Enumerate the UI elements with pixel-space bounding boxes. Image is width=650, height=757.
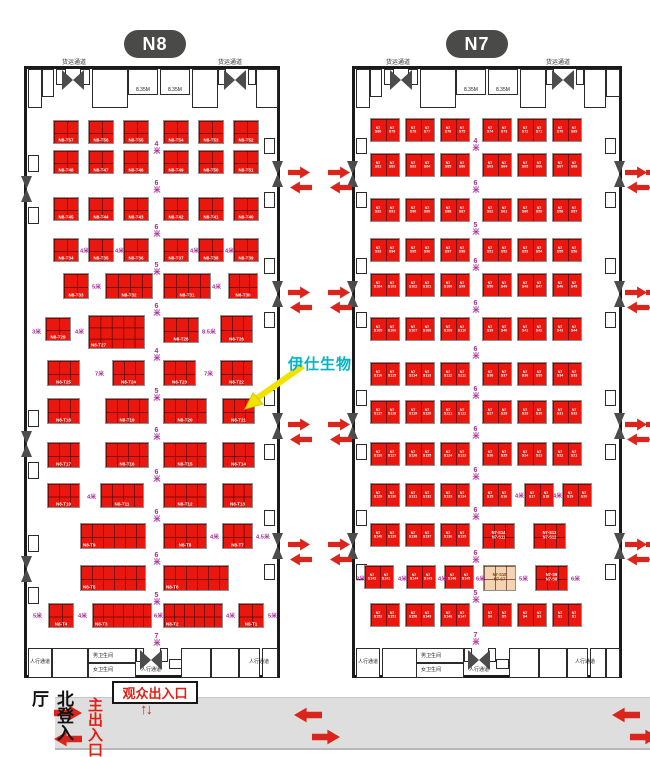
service-room [356,69,370,108]
up-down-arrows-icon: ↑↓ [140,701,151,718]
service-room [576,69,584,85]
booth-N8-T27[interactable]: N8-T27 [88,315,145,349]
service-room [264,258,275,274]
booth-N8-T46[interactable]: N8-T46 [123,150,149,174]
booth-N8-T47[interactable]: N8-T47 [88,150,114,174]
direction-arrow-icon [625,166,647,179]
booth-N8-T32[interactable]: N8-T32 [105,273,153,299]
tiny-label: 男卫生间 [421,652,441,659]
booth-N7-S105[interactable]: N7S105N7S106 [370,317,400,341]
booth-N7-S22[interactable]: N7S22N7S21 [552,442,582,466]
booth-N7-S27[interactable]: N7S27N7S28 [482,400,512,424]
service-room [605,564,616,580]
service-room [28,462,39,479]
booth-N7-S15[interactable]: N7S15N7S16 [482,483,512,507]
booth-N7-S124[interactable]: N7S124N7S123 [440,442,470,466]
booth-N7-S10[interactable]: N7-S10N7-S7 [483,565,516,591]
booth-N8-T3[interactable]: N8-T3 [92,603,152,628]
booth-N7-S138[interactable]: N7S138N7S137 [405,523,435,547]
direction-arrow-icon [627,553,649,566]
booth-N7-S58[interactable]: N7S58N7S57 [552,198,582,222]
booth-N8-T11[interactable]: N8-T11 [100,483,144,508]
aisle-dimension-label: 6米 [571,575,580,583]
direction-arrow-icon [625,418,647,431]
aisle-dimension-label: 6米 [470,180,480,192]
booth-N7-S83[interactable]: N7S83N7S84 [405,153,435,177]
service-room [192,69,218,108]
booth-N7-S39[interactable]: N7S39N7S40 [482,317,512,341]
booth-N8-T24[interactable]: N8-T24 [112,360,145,386]
direction-arrow-icon [330,433,352,446]
booth-N7-S102[interactable]: N7S102N7S101 [405,273,435,297]
booth-N8-T39[interactable]: N8-T39 [233,238,259,262]
aisle-dimension-label: 4米 [553,492,562,500]
service-room [605,510,616,526]
booth-N7-S34[interactable]: N7S34N7S33 [552,362,582,386]
service-room [584,69,606,108]
booth-N8-T53[interactable]: N8-T53 [198,120,224,144]
aisle-dimension-label: 4米 [151,348,161,360]
booth-N7-S100[interactable]: N7S100N7S99 [440,273,470,297]
aisle-dimension-label: 4米 [212,283,221,291]
booth-N8-T21[interactable]: N8-T21 [222,398,255,424]
aisle-dimension-label: 5米 [151,388,161,400]
aisle-dimension-label: 7米 [470,632,480,644]
visitor-entrance-label: 观众出入口 [112,681,198,704]
booth-N8-T9[interactable]: N8-T9 [80,523,146,549]
booth-N8-T56[interactable]: N8-T56 [88,120,114,144]
north-hall-label: 北登入厅 [26,690,76,757]
booth-N7-S116[interactable]: N7S116N7S115 [370,362,400,386]
aisle-dimension-label: 6米 [470,467,480,479]
booth-N7-S78[interactable]: N7S78N7S77 [405,118,435,142]
tiny-label: 8.35M [496,87,510,93]
booth-N7-S60[interactable]: N7S60N7S59 [517,198,547,222]
tiny-label: 人行通道 [575,658,595,665]
service-room [356,510,367,526]
booth-N7-S72[interactable]: N7S72N7S71 [517,118,547,142]
booth-N7-S19[interactable]: N7S19N7S20 [562,483,592,507]
exhibitor-annotation: 伊仕生物 [288,353,352,374]
booth-N7-S119[interactable]: N7S119N7S120 [405,400,435,424]
booth-N8-T51[interactable]: N8-T51 [233,150,259,174]
direction-arrow-icon [288,418,310,431]
service-room [264,510,275,526]
service-room [605,138,616,154]
aisle-dimension-label: 8.5米 [202,328,216,336]
aisle-dimension-label: 6米 [470,346,480,358]
direction-arrow-icon [627,433,649,446]
booth-N7-S148[interactable]: N7S148N7S147 [440,603,470,627]
booth-N8-T18[interactable]: N8-T18 [47,398,80,424]
booth-N8-T29[interactable]: N8-T29 [45,317,71,341]
booth-N7-S62[interactable]: N7S62N7S61 [482,198,512,222]
booth-N7-S53[interactable]: N7S53N7S54 [517,238,547,262]
booth-N8-T45[interactable]: N8-T45 [53,197,79,221]
aisle-dimension-label: 6米 [476,575,485,583]
booth-N7-S114[interactable]: N7S114N7S113 [405,362,435,386]
aisle-dimension-label: 4米 [75,328,84,336]
aisle-dimension-label: 6米 [470,550,480,562]
booth-N7-S76[interactable]: N7S76N7S75 [440,118,470,142]
service-room [52,648,88,678]
aisle-dimension-label: 5米 [151,592,161,604]
direction-arrow-icon [330,553,352,566]
service-room [264,390,275,406]
aisle-dimension-label: 4米 [438,575,447,583]
tiny-label: 人行通道 [30,658,50,665]
direction-arrow-icon [625,538,647,551]
booth-N8-T28[interactable]: N8-T28 [163,317,199,343]
aisle-dimension-label: 4米 [226,612,235,620]
booth-N7-S36[interactable]: N7S36N7S35 [517,362,547,386]
booth-N8-T8[interactable]: N8-T8 [163,523,207,549]
service-room [28,155,39,172]
aisle-dimension-label: 4米 [87,493,96,501]
aisle-dimension-label: 4米 [515,492,524,500]
booth-N8-T4[interactable]: N8-T4 [48,603,74,628]
booth-N8-T1[interactable]: N8-T1 [238,603,264,628]
booth-N8-T52[interactable]: N8-T52 [233,120,259,144]
tiny-label: 8.35M [136,87,150,93]
aisle-dimension-label: 5米 [151,262,161,274]
booth-N8-T13[interactable]: N8-T13 [222,483,253,508]
booth-N8-T16[interactable]: N8-T16 [105,442,149,468]
service-room [28,587,39,604]
direction-arrow-icon [646,538,650,551]
booth-N7-S38[interactable]: N7S38N7S37 [482,362,512,386]
booth-N7-S55[interactable]: N7S55N7S56 [552,238,582,262]
booth-N7-S140[interactable]: N7S140N7S139 [370,523,400,547]
aisle-dimension-label: 6米 [470,258,480,270]
service-room [28,535,39,552]
booth-N8-T54[interactable]: N8-T54 [163,120,189,144]
service-room [382,648,418,678]
direction-arrow-icon [328,538,350,551]
direction-arrow-icon [328,418,350,431]
aisle-dimension-label: 4米 [398,575,407,583]
booth-N7-S117[interactable]: N7S117N7S118 [370,400,400,424]
booth-N7-S128[interactable]: N7S128N7S127 [370,442,400,466]
tiny-label: 人行通道 [249,658,269,665]
direction-arrow-icon [290,553,312,566]
aisle-dimension-label: 3米 [356,575,365,583]
booth-N8-T50[interactable]: N8-T50 [198,150,224,174]
direction-arrow-icon [627,301,649,314]
aisle-dimension-label: 6米 [154,612,163,620]
booth-N8-T19[interactable]: N8-T19 [105,398,149,424]
booth-N7-S17[interactable]: N7S17N7S18 [524,483,554,507]
booth-N7-S80[interactable]: N7S80N7S79 [370,118,400,142]
booth-N7-S95[interactable]: N7S95N7S96 [405,238,435,262]
aisle-dimension-label: 6米 [470,507,480,519]
aisle-dimension-label: 7米 [151,633,161,645]
booth-N7-S107[interactable]: N7S107N7S108 [405,317,435,341]
aisle-dimension-label: 4米 [78,612,87,620]
tiny-label: 男卫生间 [93,652,113,659]
booth-N7-S4[interactable]: N7S4N7S3 [517,603,547,627]
direction-arrow-icon [290,433,312,446]
booth-N8-T36[interactable]: N8-T36 [123,238,149,262]
aisle-dimension-label: 4米 [115,247,124,255]
booth-N8-T20[interactable]: N8-T20 [163,398,207,424]
aisle-dimension-label: 5米 [470,590,480,602]
service-room [264,138,275,154]
service-room [606,69,620,97]
booth-N8-T30[interactable]: N8-T30 [228,273,258,299]
direction-arrow-icon [328,286,350,299]
exhibition-floor-plan: 观众出入口 ↑↓ 北登入厅 主出入口 伊仕生物 N8货运通道货运通道8.35M8… [0,0,650,757]
booth-N7-S90[interactable]: N7S90N7S89 [405,198,435,222]
service-room [496,659,509,669]
booth-N7-S50[interactable]: N7S50N7S49 [482,273,512,297]
hall-N7-badge: N7 [446,30,508,58]
booth-N8-T42[interactable]: N8-T42 [163,197,189,221]
service-room [539,648,567,678]
booth-N7-S46[interactable]: N7S46N7S45 [552,273,582,297]
tiny-label: 8.35M [464,87,478,93]
booth-N8-T23[interactable]: N8-T23 [163,360,196,386]
tiny-label: 人行通道 [358,658,378,665]
booth-N8-T33[interactable]: N8-T33 [63,273,89,299]
main-exit-label: 主出入口 [84,697,105,757]
booth-N8-T37[interactable]: N8-T37 [163,238,189,262]
aisle-dimension-label: 4米 [80,247,89,255]
booth-N8-T2[interactable]: N8-T2 [163,603,223,628]
service-room [356,444,367,460]
booth-N7-S13[interactable]: N7-S13N7-S12 [533,523,566,549]
aisle-dimension-label: 6米 [470,426,480,438]
tiny-label: 女卫生间 [421,666,441,673]
booth-N7-S26[interactable]: N7S26N7S25 [482,442,512,466]
booth-N8-T55[interactable]: N8-T55 [123,120,149,144]
booth-N7-S29[interactable]: N7S29N7S30 [517,400,547,424]
aisle-dimension-label: 6米 [151,509,161,521]
aisle-dimension-label: 5米 [268,612,277,620]
aisle-dimension-label: 6米 [151,303,161,315]
aisle-dimension-label: 4米 [225,247,234,255]
booth-N8-T49[interactable]: N8-T49 [163,150,189,174]
aisle-dimension-label: 6米 [151,427,161,439]
aisle-dimension-label: 6米 [470,386,480,398]
booth-N7-S48[interactable]: N7S48N7S47 [517,273,547,297]
service-room [181,648,211,678]
booth-N7-S129[interactable]: N7S129N7S130 [370,483,400,507]
service-room [92,69,128,108]
service-room [256,69,278,108]
booth-N8-T31[interactable]: N8-T31 [163,273,211,299]
direction-arrow-icon [288,538,310,551]
booth-N7-S133[interactable]: N7S133N7S134 [440,483,470,507]
service-room [370,69,382,97]
service-room [264,444,275,460]
service-room [520,69,546,108]
direction-arrow-icon [330,301,352,314]
service-room [211,648,239,678]
booth-N7-S41[interactable]: N7S41N7S42 [517,317,547,341]
booth-N7-S146[interactable]: N7S146N7S145 [444,565,474,589]
service-room [605,390,616,406]
booth-N8-T17[interactable]: N8-T17 [47,442,80,468]
service-room [356,312,367,328]
service-room [356,192,367,208]
aisle-dimension-label: 6米 [151,224,161,236]
tiny-label: 8.35M [168,87,182,93]
booth-N7-S121[interactable]: N7S121N7S122 [440,400,470,424]
booth-N7-S63[interactable]: N7S63N7S64 [482,153,512,177]
booth-N7-S97[interactable]: N7S97N7S98 [440,238,470,262]
booth-N8-T44[interactable]: N8-T44 [88,197,114,221]
booth-N8-T26[interactable]: N8-T26 [220,315,253,343]
direction-arrow-icon [625,286,647,299]
booth-N7-S136[interactable]: N7S136N7S135 [440,523,470,547]
service-room [356,138,367,154]
service-room [356,258,367,274]
aisle-dimension-label: 5米 [92,283,101,291]
service-room [356,390,367,406]
service-room [420,69,456,108]
aisle-dimension-label: 3米 [32,328,41,336]
booth-N8-T15[interactable]: N8-T15 [163,442,207,468]
aisle-dimension-label: 6米 [151,180,161,192]
booth-N7-S85[interactable]: N7S85N7S86 [440,153,470,177]
booth-N8-T6[interactable]: N8-T6 [163,565,229,591]
booth-N7-S65[interactable]: N7S65N7S66 [517,153,547,177]
booth-N7-S70[interactable]: N7S70N7S69 [552,118,582,142]
service-room [605,312,616,328]
booth-N7-S74[interactable]: N7S74N7S73 [482,118,512,142]
booth-N7-S93[interactable]: N7S93N7S94 [370,238,400,262]
booth-N7-S67[interactable]: N7S67N7S68 [552,153,582,177]
tiny-label: 货运通道 [218,57,242,66]
tiny-label: 货运通道 [386,57,410,66]
booth-N8-T12[interactable]: N8-T12 [163,483,207,508]
aisle-dimension-label: 4米 [151,141,161,153]
booth-N7-S2[interactable]: N7S2N7S1 [552,603,582,627]
service-room [264,312,275,328]
aisle-dimension-label: 4米 [190,247,199,255]
tiny-label: 女卫生间 [93,666,113,673]
service-room [28,207,39,224]
booth-N7-S92[interactable]: N7S92N7S91 [370,198,400,222]
booth-N7-S81[interactable]: N7S81N7S82 [370,153,400,177]
aisle-dimension-label: 5米 [470,222,480,234]
booth-N7-S6[interactable]: N7S6N7S5 [482,603,512,627]
service-room [28,69,42,108]
direction-arrow-icon [646,286,650,299]
booth-N8-T22[interactable]: N8-T22 [220,360,253,386]
booth-N7-S24[interactable]: N7S24N7S23 [517,442,547,466]
service-room [605,258,616,274]
booth-N7-S112[interactable]: N7S112N7S111 [440,362,470,386]
aisle-dimension-label: 7米 [204,370,213,378]
direction-arrow-icon [288,286,310,299]
booth-N8-T14[interactable]: N8-T14 [222,442,255,468]
booth-N8-T41[interactable]: N8-T41 [198,197,224,221]
service-room [28,410,39,427]
service-room [264,564,275,580]
booth-N7-S109[interactable]: N7S109N7S110 [440,317,470,341]
booth-N8-T7[interactable]: N8-T7 [222,523,253,549]
service-room [264,192,275,208]
service-room [509,648,539,678]
booth-N7-S31[interactable]: N7S31N7S32 [552,400,582,424]
booth-N8-T34[interactable]: N8-T34 [53,238,79,262]
direction-arrow-icon [328,166,350,179]
service-room [606,648,620,678]
booth-N7-S144[interactable]: N7S144N7S143 [406,565,436,589]
booth-N8-T10[interactable]: N8-T10 [47,483,80,508]
direction-arrow-icon [288,166,310,179]
booth-N7-S51[interactable]: N7S51N7S52 [482,238,512,262]
direction-arrow-icon [646,166,650,179]
hall-N8-badge: N8 [124,30,186,58]
tiny-label: 人行通道 [469,666,489,673]
direction-arrow-icon [627,181,649,194]
booth-N7-S88[interactable]: N7S88N7S87 [440,198,470,222]
aisle-dimension-label: 5米 [33,612,42,620]
aisle-dimension-label: 6米 [151,552,161,564]
service-room [605,192,616,208]
aisle-dimension-label: 5米 [519,575,528,583]
aisle-dimension-label: 7米 [95,370,104,378]
booth-N8-T48[interactable]: N8-T48 [53,150,79,174]
booth-N7-S150[interactable]: N7S150N7S149 [405,603,435,627]
booth-N8-T38[interactable]: N8-T38 [198,238,224,262]
service-room [605,444,616,460]
tiny-label: 人行通道 [141,666,161,673]
booth-N8-T43[interactable]: N8-T43 [123,197,149,221]
direction-arrow-icon [646,418,650,431]
aisle-dimension-label: 4.5米 [256,533,270,541]
booth-N7-S104[interactable]: N7S104N7S103 [370,273,400,297]
service-room [42,69,54,97]
booth-N8-T57[interactable]: N8-T57 [53,120,79,144]
booth-N7-S142[interactable]: N7S142N7S141 [364,565,394,589]
aisle-dimension-label: 6米 [470,300,480,312]
tiny-label: 货运通道 [62,57,86,66]
booth-N8-T25[interactable]: N8-T25 [47,360,80,386]
booth-N7-S43[interactable]: N7S43N7S44 [552,317,582,341]
booth-N8-T5[interactable]: N8-T5 [80,565,146,591]
direction-arrow-icon [290,181,312,194]
tiny-label: 货运通道 [546,57,570,66]
booth-N7-S126[interactable]: N7S126N7S125 [405,442,435,466]
booth-N7-S152[interactable]: N7S152N7S151 [370,603,400,627]
direction-arrow-icon [290,301,312,314]
aisle-dimension-label: 6米 [151,469,161,481]
booth-N8-T40[interactable]: N8-T40 [233,197,259,221]
booth-N8-T35[interactable]: N8-T35 [88,238,114,262]
booth-N7-S131[interactable]: N7S131N7S132 [405,483,435,507]
direction-arrow-icon [330,181,352,194]
aisle-dimension-label: 4米 [210,533,219,541]
service-room [248,69,256,85]
aisle-dimension-label: 4米 [470,138,480,150]
booth-N7-S14[interactable]: N7-S14N7-S11 [482,523,515,549]
booth-N7-S9[interactable]: N7-S9N7-S8 [535,565,568,591]
